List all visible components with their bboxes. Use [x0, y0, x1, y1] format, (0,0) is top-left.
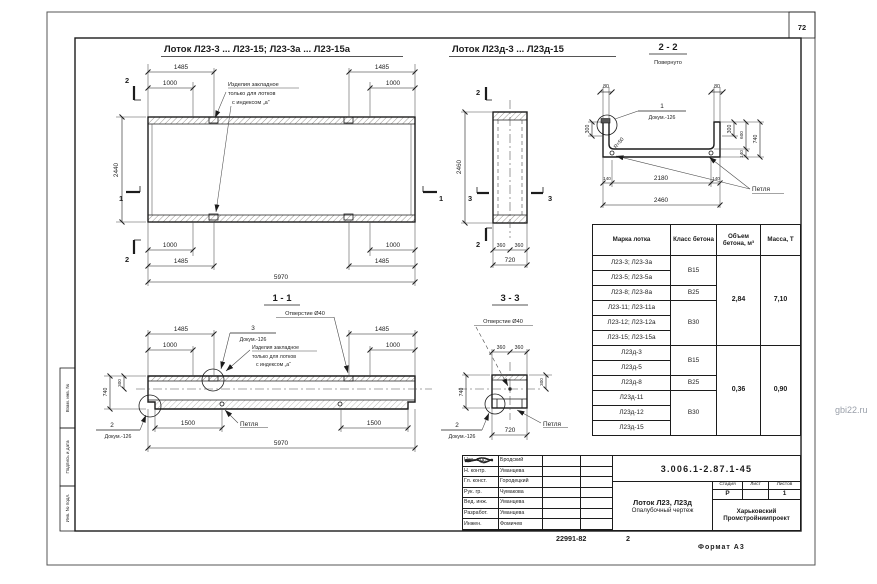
staff-name: Бродский	[499, 456, 543, 467]
dim-1000: 1000	[386, 80, 401, 87]
dim-360: 360	[497, 243, 506, 249]
staff-date	[581, 509, 612, 520]
dim-80: 80	[603, 84, 609, 90]
staff-date	[581, 467, 612, 478]
organization-line1: Харьковский	[737, 508, 777, 515]
signature	[543, 519, 581, 530]
svg-text:2: 2	[110, 422, 114, 429]
drawing-sheet: 72 Взам. инв. № Подпись и дата Инв. № по…	[0, 0, 877, 584]
staff-date	[581, 488, 612, 499]
dim-1000: 1000	[163, 80, 178, 87]
col-header-volume: Объем бетона, м³	[717, 225, 761, 256]
dim-140: 140	[739, 150, 744, 158]
col-header-mark: Марка лотка	[593, 225, 671, 256]
col-header-class: Класс бетона	[671, 225, 717, 256]
signature	[543, 498, 581, 509]
svg-text:Докум.-126: Докум.-126	[649, 115, 676, 121]
drawing-title-line2: Опалубочный чертеж	[632, 507, 694, 514]
stage-header-row: Стадия Лист Листов	[713, 482, 800, 490]
svg-text:3: 3	[251, 325, 255, 332]
page-number: 72	[798, 23, 806, 32]
dim-2180: 2180	[654, 175, 669, 182]
svg-text:Отверстие Ø40: Отверстие Ø40	[483, 319, 523, 325]
signature	[543, 509, 581, 520]
staff-date	[581, 498, 612, 509]
signature	[543, 477, 581, 488]
svg-text:Изделия закладное: Изделия закладное	[252, 345, 299, 351]
svg-text:с индексом „а“: с индексом „а“	[232, 100, 270, 106]
dim-1500: 1500	[181, 420, 196, 427]
svg-text:Петля: Петля	[752, 186, 770, 193]
plan2-title: Лоток Л23д-3 ... Л23д-15	[452, 44, 565, 55]
dim-5970: 5970	[274, 274, 289, 281]
dim-360: 360	[515, 243, 524, 249]
staff-name: Уманцева	[499, 509, 543, 520]
staff-role: Вед. инж.	[463, 498, 499, 509]
staff-name: Уманцева	[499, 498, 543, 509]
dim-5970: 5970	[274, 440, 289, 447]
staff-name: Городецкий	[499, 477, 543, 488]
dim-600: 600	[739, 131, 744, 139]
dim-720: 720	[505, 427, 516, 434]
dim-1500: 1500	[367, 420, 382, 427]
staff-role: Н. контр.	[463, 467, 499, 478]
svg-text:Докум.-126: Докум.-126	[105, 434, 132, 440]
signature	[543, 456, 581, 467]
section-2-2-title: 2 - 2	[658, 42, 677, 53]
svg-text:3: 3	[548, 194, 552, 203]
dim-740: 740	[459, 388, 465, 397]
sheets-label: Листов	[769, 482, 800, 490]
svg-text:Докум.-126: Докум.-126	[449, 434, 476, 440]
svg-text:с индексом „а“: с индексом „а“	[256, 362, 291, 368]
sheets-value: 1	[769, 490, 800, 500]
dim-1000: 1000	[163, 242, 178, 249]
staff-role: Инжен.	[463, 519, 499, 530]
svg-text:3: 3	[468, 194, 472, 203]
staff-role: Гл. конст.	[463, 477, 499, 488]
dim-1485: 1485	[375, 64, 390, 71]
watermark: gbi22.ru	[835, 405, 868, 415]
document-number: 3.006.1-2.87.1-45	[613, 456, 800, 482]
footer-sheet-number: 2	[626, 534, 630, 543]
dim-1485: 1485	[375, 258, 390, 265]
drawing-title: Лоток Л23, Л23д Опалубочный чертеж	[613, 482, 713, 530]
margin-label: Инв. № подл.	[65, 494, 70, 523]
materials-table: Марка лотка Класс бетона Объем бетона, м…	[592, 224, 801, 436]
svg-text:1: 1	[439, 194, 443, 203]
margin-label: Подпись и дата	[65, 440, 70, 473]
dim-1485: 1485	[375, 326, 390, 333]
dim-2440: 2440	[113, 162, 120, 177]
dim-720: 720	[505, 257, 516, 264]
signature	[543, 488, 581, 499]
staff-role: Разработ.	[463, 509, 499, 520]
staff-name: Уманцева	[499, 467, 543, 478]
svg-text:Отверстие Ø40: Отверстие Ø40	[285, 311, 325, 317]
svg-text:1: 1	[660, 103, 664, 110]
dim-140: 140	[603, 176, 611, 181]
staff-date	[581, 456, 612, 467]
dim-1485: 1485	[174, 258, 189, 265]
section-2-2-subtitle: Повернуто	[654, 60, 682, 66]
stage-value-row: Р 1	[713, 490, 800, 500]
dim-300: 300	[117, 379, 122, 387]
sheet-label: Лист	[743, 482, 769, 490]
staff-role: Рук. гр.	[463, 488, 499, 499]
table-header-row: Марка лотка Класс бетона Объем бетона, м…	[593, 225, 801, 256]
svg-text:Петля: Петля	[543, 421, 561, 428]
format-label: Формат А3	[698, 544, 745, 551]
svg-text:1: 1	[119, 194, 123, 203]
drawing-title-line1: Лоток Л23, Л23д	[633, 498, 692, 507]
margin-label: Взам. инв. №	[65, 384, 70, 413]
staff-name: Фомичев	[499, 519, 543, 530]
dim-740: 740	[103, 388, 109, 397]
dim-300: 300	[539, 378, 544, 386]
svg-text:только для лотков: только для лотков	[228, 91, 275, 97]
dim-300: 300	[727, 125, 733, 134]
svg-text:2: 2	[455, 422, 459, 429]
title-block: Нач. отд. Бродский Н. контр. Уманцева Гл…	[462, 455, 801, 531]
dim-1485: 1485	[174, 64, 189, 71]
staff-date	[581, 477, 612, 488]
svg-text:2: 2	[476, 240, 480, 249]
dim-1000: 1000	[163, 342, 178, 349]
dim-2460: 2460	[654, 197, 669, 204]
signature	[543, 467, 581, 478]
dim-360: 360	[497, 345, 506, 351]
stage-value: Р	[713, 490, 743, 500]
dim-2460: 2460	[456, 159, 463, 174]
dim-1000: 1000	[386, 242, 401, 249]
svg-text:2: 2	[476, 88, 480, 97]
svg-text:2: 2	[125, 76, 129, 85]
dim-300: 300	[585, 125, 591, 134]
dim-80: 80	[714, 84, 720, 90]
svg-text:Изделия закладное: Изделия закладное	[228, 82, 279, 88]
organization: Харьковский Промстройниипроект	[713, 500, 800, 530]
organization-line2: Промстройниипроект	[723, 515, 789, 522]
staff-table: Нач. отд. Бродский Н. контр. Уманцева Гл…	[463, 456, 613, 530]
svg-text:Докум.-126: Докум.-126	[240, 337, 267, 343]
embed-plate	[601, 119, 610, 124]
order-number: 22991-82	[556, 534, 586, 543]
plan-title: Лоток Л23-3 ... Л23-15; Л23-3а ... Л23-1…	[164, 44, 351, 55]
svg-text:только для лотков: только для лотков	[252, 354, 296, 360]
dim-360: 360	[515, 345, 524, 351]
dim-740: 740	[753, 135, 759, 144]
table-row: Л23-3; Л23-3а В15 2,84 7,10	[593, 256, 801, 271]
sheet-value	[743, 490, 769, 500]
dim-1000: 1000	[386, 342, 401, 349]
staff-date	[581, 519, 612, 530]
table-row: Л23д-3 В15 0,36 0,90	[593, 346, 801, 361]
svg-text:2: 2	[125, 255, 129, 264]
stage-label: Стадия	[713, 482, 743, 490]
section-3-3-title: 3 - 3	[500, 293, 519, 304]
col-header-mass: Масса, Т	[761, 225, 801, 256]
svg-text:Петля: Петля	[240, 421, 258, 428]
section-1-1-title: 1 - 1	[272, 293, 292, 304]
staff-name: Чумакова	[499, 488, 543, 499]
dim-1485: 1485	[174, 326, 189, 333]
